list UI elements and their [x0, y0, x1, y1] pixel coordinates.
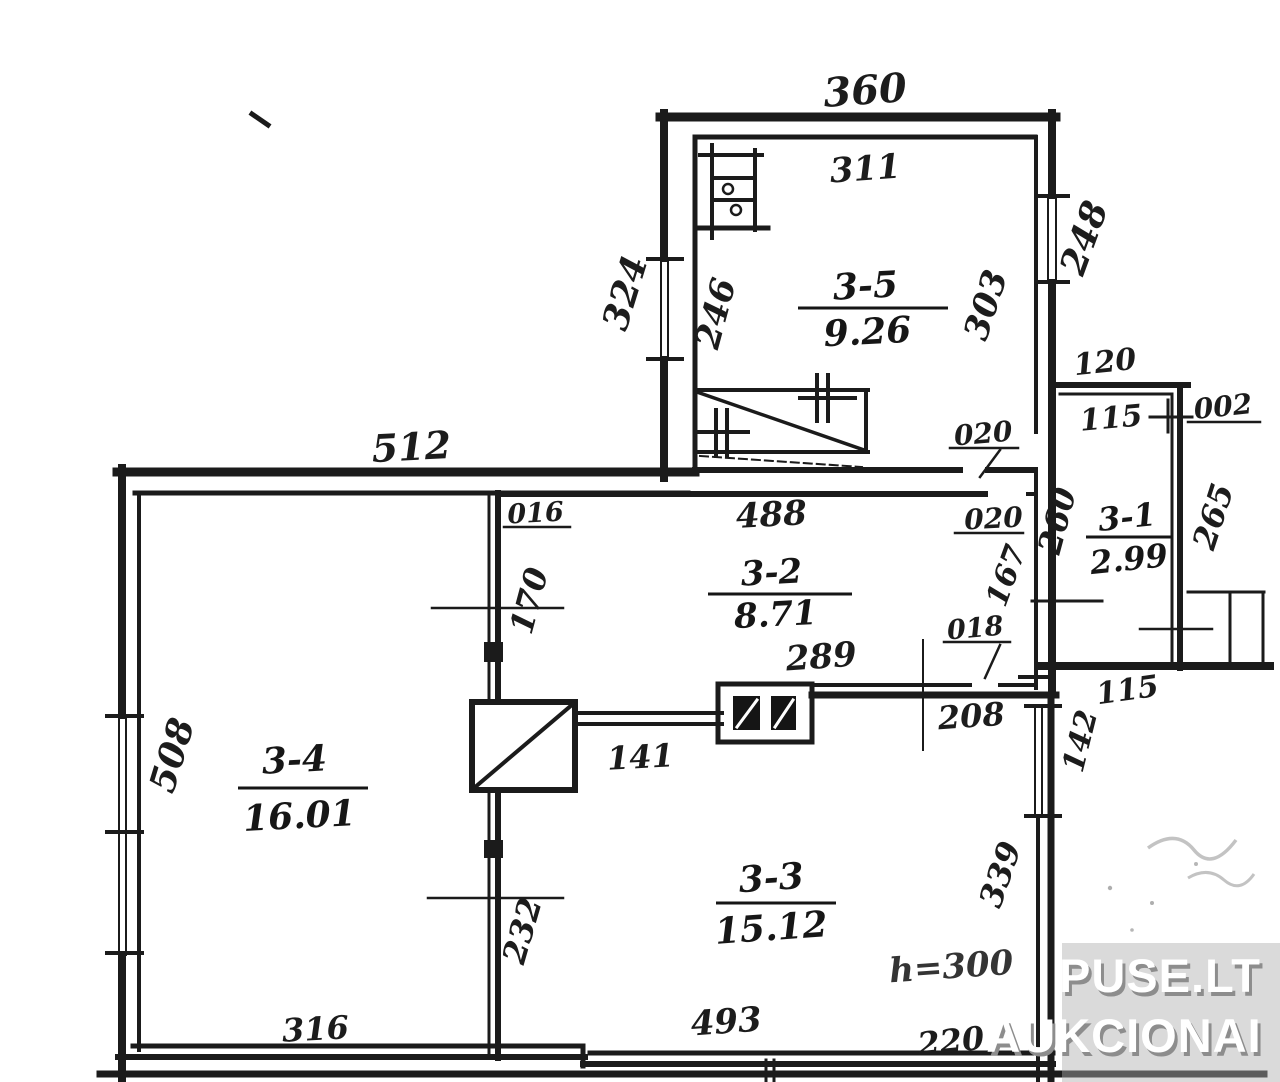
dim-167: 167	[980, 540, 1034, 611]
floorplan-drawing: 3-5 9.26 3-1 2.99 3-2 8.71 3-4 16.01 3-3…	[0, 0, 1280, 1082]
dim-020-lower: 020	[963, 500, 1024, 536]
faint-marks	[1108, 838, 1254, 931]
room-3-1-id: 3-1	[1096, 495, 1157, 539]
dim-260: 260	[1030, 484, 1084, 559]
dim-141: 141	[606, 736, 675, 777]
height-note: h=300	[888, 943, 1015, 992]
floorplan-canvas: 3-5 9.26 3-1 2.99 3-2 8.71 3-4 16.01 3-3…	[0, 0, 1280, 1082]
watermark-line1: PUSE.LT	[1059, 949, 1261, 1002]
dim-115-bottom: 115	[1094, 669, 1161, 712]
dim-002: 002	[1192, 387, 1254, 426]
dim-360: 360	[822, 64, 909, 117]
room-3-2-area: 8.71	[732, 593, 818, 637]
room-3-4-id: 3-4	[261, 737, 328, 782]
dim-120: 120	[1072, 342, 1138, 383]
dim-508: 508	[141, 713, 203, 797]
dim-248: 248	[1051, 195, 1117, 281]
dim-316: 316	[281, 1008, 350, 1049]
watermark-line2: AUKCIONAI	[986, 1009, 1261, 1062]
room-3-2-id: 3-2	[740, 551, 803, 594]
dim-303: 303	[956, 265, 1016, 345]
scan-artifact	[252, 114, 268, 125]
dim-265: 265	[1185, 479, 1242, 555]
room-3-5-id: 3-5	[832, 263, 899, 308]
dim-311: 311	[828, 147, 902, 192]
dim-208: 208	[936, 695, 1006, 738]
room-labels: 3-5 9.26 3-1 2.99 3-2 8.71 3-4 16.01 3-3…	[238, 263, 1172, 953]
dim-339: 339	[971, 837, 1029, 913]
room-3-5-area: 9.26	[822, 309, 912, 356]
dim-016: 016	[507, 497, 565, 531]
dim-220: 220	[915, 1019, 986, 1064]
dim-018: 018	[946, 611, 1005, 647]
stove-symbol	[472, 702, 575, 790]
room-3-1-area: 2.99	[1087, 536, 1169, 582]
dim-115-top: 115	[1078, 398, 1143, 438]
dim-142: 142	[1056, 707, 1105, 776]
staircase-symbol	[695, 375, 868, 470]
dim-289: 289	[783, 635, 858, 680]
dim-324: 324	[594, 251, 656, 335]
dim-232: 232	[494, 893, 549, 969]
dim-493: 493	[689, 1000, 763, 1045]
room-3-3-area: 15.12	[713, 903, 828, 953]
dim-020-upper: 020	[953, 415, 1015, 453]
watermark: PUSE.LT PUSE.LT AUKCIONAI AUKCIONAI	[986, 943, 1280, 1082]
dim-512: 512	[371, 422, 453, 471]
ladder-symbol	[698, 145, 768, 238]
dim-488: 488	[735, 493, 808, 537]
dim-170: 170	[502, 564, 556, 638]
chimney-symbol	[718, 684, 812, 742]
room-3-4-area: 16.01	[242, 792, 357, 840]
room-3-3-id: 3-3	[737, 855, 805, 901]
